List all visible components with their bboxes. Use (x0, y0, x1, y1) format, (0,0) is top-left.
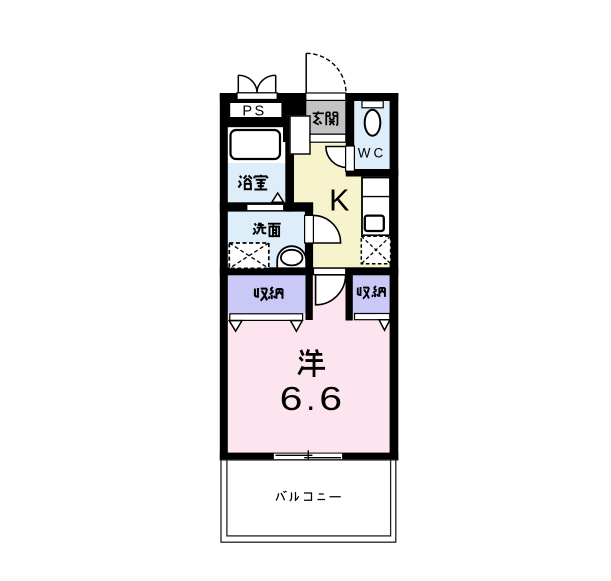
svg-text:6: 6 (280, 380, 303, 417)
svg-text:K: K (329, 183, 350, 218)
svg-text:.: . (306, 380, 315, 417)
svg-text:6: 6 (319, 380, 342, 417)
svg-text:WC: WC (358, 146, 387, 161)
svg-text:PS: PS (242, 104, 266, 120)
